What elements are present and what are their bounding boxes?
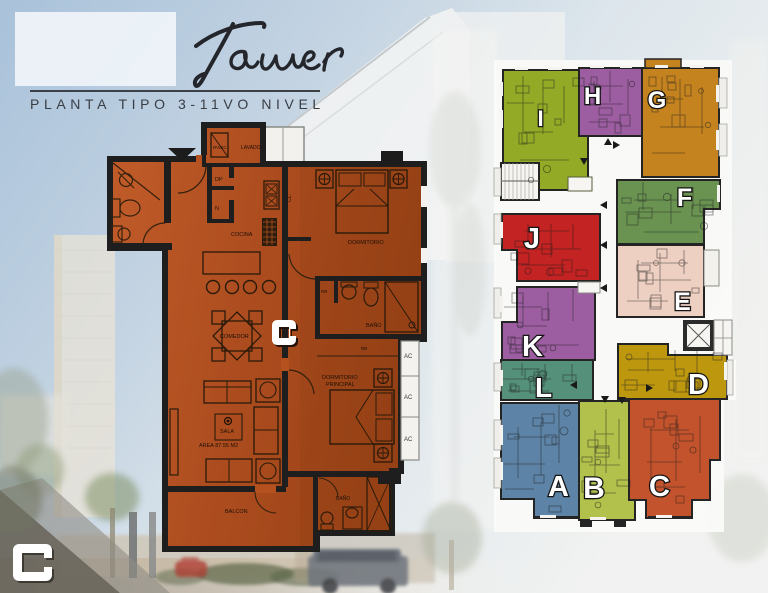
svg-text:AC: AC xyxy=(404,395,413,401)
svg-text:RB: RB xyxy=(361,346,367,351)
svg-text:G: G xyxy=(648,87,667,114)
svg-text:RV/EC: RV/EC xyxy=(213,145,227,150)
svg-text:C: C xyxy=(649,471,670,503)
svg-text:RB: RB xyxy=(321,289,327,294)
svg-text:B: B xyxy=(583,472,605,505)
svg-text:I: I xyxy=(537,106,543,131)
svg-text:D: D xyxy=(688,369,709,401)
svg-text:DORMITORIO: DORMITORIO xyxy=(322,375,358,381)
svg-text:BALCON: BALCON xyxy=(225,509,248,515)
svg-text:DP: DP xyxy=(215,177,223,183)
svg-text:K: K xyxy=(522,331,543,363)
svg-text:PRINCIPAL: PRINCIPAL xyxy=(326,382,355,388)
svg-text:AREA 87.55 M2: AREA 87.55 M2 xyxy=(199,443,238,449)
svg-text:AC: AC xyxy=(404,354,413,360)
svg-text:COMEDOR: COMEDOR xyxy=(220,334,249,340)
svg-text:A: A xyxy=(548,471,569,503)
svg-text:L: L xyxy=(535,372,552,403)
svg-text:SALA: SALA xyxy=(220,429,234,435)
svg-text:COCINA: COCINA xyxy=(231,232,253,238)
svg-text:AC: AC xyxy=(404,437,413,443)
svg-text:CL.: CL. xyxy=(287,194,293,202)
svg-text:H: H xyxy=(584,83,601,110)
svg-text:N: N xyxy=(215,206,219,212)
svg-text:PLANTA TIPO 3-11VO NIVEL: PLANTA TIPO 3-11VO NIVEL xyxy=(30,96,325,112)
svg-text:BAÑO: BAÑO xyxy=(366,322,382,329)
svg-text:BAÑO: BAÑO xyxy=(336,495,350,502)
svg-text:J: J xyxy=(524,223,540,255)
svg-text:DORMITORIO: DORMITORIO xyxy=(348,240,384,246)
svg-text:E: E xyxy=(674,288,691,316)
svg-text:F: F xyxy=(677,184,692,212)
svg-text:LAVADO: LAVADO xyxy=(241,145,261,151)
